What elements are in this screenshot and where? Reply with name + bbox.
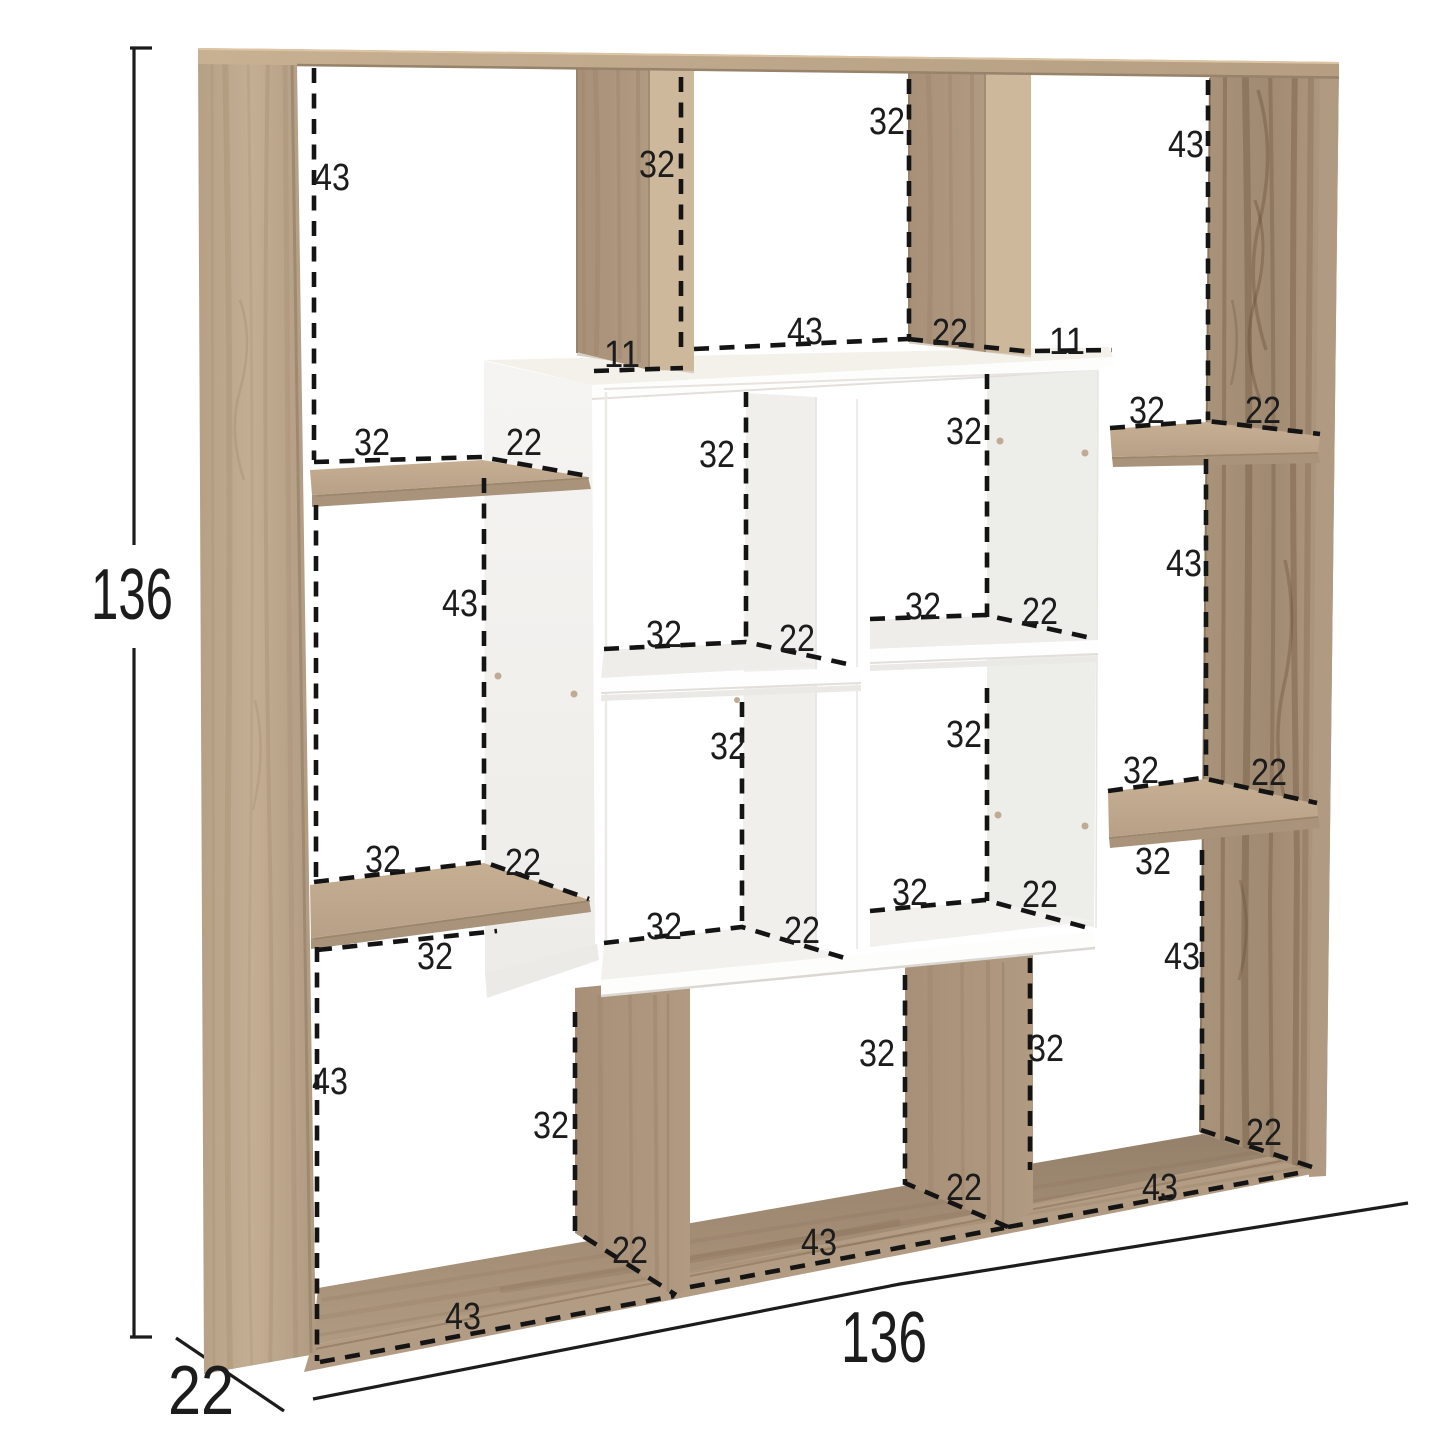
svg-text:32: 32 xyxy=(417,936,453,978)
svg-text:22: 22 xyxy=(505,842,541,884)
svg-text:136: 136 xyxy=(91,555,173,635)
svg-text:43: 43 xyxy=(442,583,478,625)
svg-text:32: 32 xyxy=(533,1105,569,1147)
svg-text:32: 32 xyxy=(1135,841,1171,883)
svg-text:32: 32 xyxy=(946,714,982,756)
svg-text:22: 22 xyxy=(168,1351,234,1429)
svg-text:32: 32 xyxy=(905,586,941,628)
svg-text:32: 32 xyxy=(710,726,746,768)
svg-text:22: 22 xyxy=(1245,390,1281,432)
svg-text:136: 136 xyxy=(841,1298,927,1378)
svg-text:11: 11 xyxy=(604,334,640,376)
svg-text:43: 43 xyxy=(801,1222,837,1264)
svg-text:32: 32 xyxy=(1129,390,1165,432)
svg-text:32: 32 xyxy=(646,614,682,656)
svg-text:32: 32 xyxy=(869,101,905,143)
svg-text:32: 32 xyxy=(946,411,982,453)
svg-text:22: 22 xyxy=(779,618,815,660)
svg-text:32: 32 xyxy=(1028,1028,1064,1070)
svg-text:32: 32 xyxy=(354,422,390,464)
svg-text:43: 43 xyxy=(1142,1167,1178,1209)
svg-text:43: 43 xyxy=(312,1061,348,1103)
svg-text:32: 32 xyxy=(639,144,675,186)
svg-text:43: 43 xyxy=(314,157,350,199)
svg-text:22: 22 xyxy=(506,422,542,464)
svg-text:22: 22 xyxy=(1022,591,1058,633)
svg-text:22: 22 xyxy=(1022,874,1058,916)
svg-text:43: 43 xyxy=(445,1296,481,1338)
svg-text:22: 22 xyxy=(784,910,820,952)
svg-text:22: 22 xyxy=(946,1167,982,1209)
svg-text:32: 32 xyxy=(1123,750,1159,792)
svg-text:32: 32 xyxy=(859,1033,895,1075)
svg-text:11: 11 xyxy=(1049,321,1085,363)
svg-text:32: 32 xyxy=(365,839,401,881)
svg-text:32: 32 xyxy=(646,906,682,948)
svg-text:22: 22 xyxy=(612,1230,648,1272)
svg-text:32: 32 xyxy=(699,434,735,476)
svg-text:43: 43 xyxy=(1168,124,1204,166)
svg-text:22: 22 xyxy=(1246,1112,1282,1154)
svg-text:43: 43 xyxy=(1164,936,1200,978)
svg-text:22: 22 xyxy=(1251,752,1287,794)
svg-text:32: 32 xyxy=(892,872,928,914)
svg-text:43: 43 xyxy=(1166,543,1202,585)
svg-text:22: 22 xyxy=(932,312,968,354)
svg-text:43: 43 xyxy=(787,311,823,353)
